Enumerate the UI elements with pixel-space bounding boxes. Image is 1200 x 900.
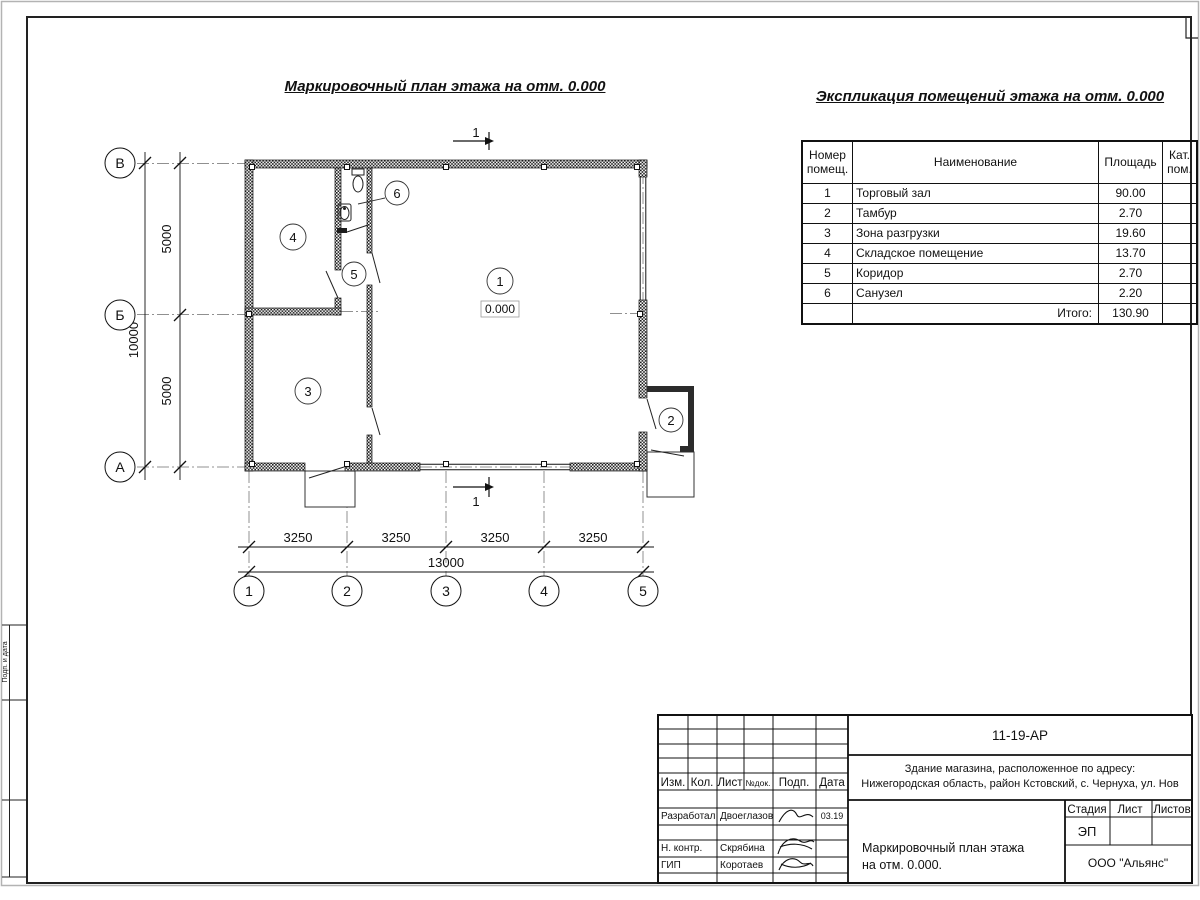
cell-name: Коридор [853, 264, 1099, 284]
address-line2: Нижегородская область, район Кстовский, … [861, 778, 1179, 790]
dim-3250-4: 3250 [579, 530, 608, 545]
cell-num [802, 304, 853, 325]
door-corridor-hall [372, 253, 380, 283]
explication-title: Экспликация помещений этажа на отм. 0.00… [793, 88, 1187, 105]
cell-cat [1163, 244, 1198, 264]
razrab-name: Двоеглазов [720, 811, 773, 822]
stage-label: Стадия [1067, 804, 1106, 816]
cell-cat [1163, 304, 1198, 325]
col-data: Дата [819, 777, 845, 789]
cell-cat [1163, 204, 1198, 224]
cell-num: 6 [802, 284, 853, 304]
wall-bottom-seg2 [345, 463, 420, 471]
table-row: 2 Тамбур 2.70 [802, 204, 1197, 224]
dimension-ticks [139, 157, 649, 578]
tambour-porch [647, 452, 694, 497]
header-name: Наименование [853, 141, 1099, 184]
total-label: Итого: [853, 304, 1099, 325]
door-room4 [326, 271, 338, 298]
wall-pier-wc [337, 228, 347, 233]
col-kol: Кол. [691, 777, 714, 789]
plan-title: Маркировочный план этажа на отм. 0.000 [225, 78, 665, 95]
header-category: Кат. пом. [1163, 141, 1198, 184]
list-label: Лист [1118, 804, 1144, 816]
door-room3-hall [372, 408, 380, 435]
total-value: 130.90 [1099, 304, 1163, 325]
title-block: Изм. Кол. Лист №док. Подп. Дата Разработ… [658, 715, 1192, 883]
axis-letter-b: Б [115, 307, 124, 323]
listov-label: Листов [1153, 804, 1190, 816]
explication-table: Номер помещ. Наименование Площадь Кат. п… [801, 140, 1198, 325]
cell-name: Зона разгрузки [853, 224, 1099, 244]
door-leaves [309, 225, 684, 478]
table-row: 3 Зона разгрузки 19.60 [802, 224, 1197, 244]
company-name: ООО "Альянс" [1088, 856, 1168, 870]
porches [305, 452, 694, 507]
toilet-icon [352, 169, 364, 192]
room-label-5: 5 [350, 267, 357, 282]
section-label-bottom: 1 [472, 494, 479, 509]
cell-name: Складское помещение [853, 244, 1099, 264]
col-list: Лист [718, 777, 744, 789]
stage-value: ЭП [1078, 824, 1097, 839]
cell-num: 4 [802, 244, 853, 264]
door-wc [347, 225, 368, 232]
side-stamp-label: Подп. и дата [2, 641, 9, 682]
cell-area: 19.60 [1099, 224, 1163, 244]
dim-3250-3: 3250 [481, 530, 510, 545]
axis-number-2: 2 [343, 583, 351, 599]
col-podp: Подп. [779, 777, 810, 789]
drawing-name-line2: на отм. 0.000. [862, 858, 942, 872]
dim-13000: 13000 [428, 555, 464, 570]
col-izm: Изм. [661, 777, 686, 789]
room-label-2: 2 [667, 413, 674, 428]
header-area: Площадь [1099, 141, 1163, 184]
wall-right-seg1 [639, 160, 647, 177]
gip-name: Коротаев [720, 860, 763, 871]
axis-letter-a: А [115, 459, 125, 475]
cell-cat [1163, 284, 1198, 304]
cell-area: 2.70 [1099, 264, 1163, 284]
dim-3250-2: 3250 [382, 530, 411, 545]
axis-marker-squares [247, 165, 643, 467]
nkontr-label: Н. контр. [661, 843, 702, 854]
room-label-4: 4 [289, 230, 296, 245]
axis-number-1: 1 [245, 583, 253, 599]
axis-letter-v: В [115, 155, 124, 171]
wall-right-seg3 [639, 432, 647, 471]
room-label-3: 3 [304, 384, 311, 399]
explication-header-row: Номер помещ. Наименование Площадь Кат. п… [802, 141, 1197, 184]
axis-number-4: 4 [540, 583, 548, 599]
axis-number-5: 5 [639, 583, 647, 599]
cell-cat [1163, 224, 1198, 244]
axis-number-3: 3 [442, 583, 450, 599]
doc-number: 11-19-АР [992, 728, 1048, 743]
cell-area: 2.70 [1099, 204, 1163, 224]
axis-grid-lines [137, 164, 643, 577]
table-row: 1 Торговый зал 90.00 [802, 184, 1197, 204]
wc-fixtures [338, 169, 364, 221]
floor-plan-drawing: Подп. и дата [0, 0, 1200, 900]
walls [245, 160, 647, 471]
cell-num: 3 [802, 224, 853, 244]
cell-area: 2.20 [1099, 284, 1163, 304]
razrab-label: Разработал [661, 810, 716, 822]
razrab-date: 03.19 [821, 811, 844, 821]
dimensions: 5000 5000 10000 3250 3250 3250 3250 1300… [126, 152, 654, 578]
table-row: 4 Складское помещение 13.70 [802, 244, 1197, 264]
door-hall-tambour [647, 399, 656, 429]
cell-name: Торговый зал [853, 184, 1099, 204]
cell-area: 90.00 [1099, 184, 1163, 204]
address-line1: Здание магазина, расположенное по адресу… [905, 763, 1136, 775]
section-label-top: 1 [472, 125, 479, 140]
wall-corridor-east-stub [367, 435, 372, 463]
dim-5000-top: 5000 [159, 225, 174, 254]
room-label-6: 6 [393, 186, 400, 201]
cell-cat [1163, 184, 1198, 204]
header-room-number: Номер помещ. [802, 141, 853, 184]
total-row: Итого: 130.90 [802, 304, 1197, 325]
cell-num: 5 [802, 264, 853, 284]
cell-cat [1163, 264, 1198, 284]
cell-name: Тамбур [853, 204, 1099, 224]
nkontr-name: Скрябина [720, 842, 765, 854]
cell-name: Санузел [853, 284, 1099, 304]
drawing-name-line1: Маркировочный план этажа [862, 841, 1024, 855]
room-label-1: 1 [496, 274, 503, 289]
elevation-label: 0.000 [485, 302, 515, 316]
cell-area: 13.70 [1099, 244, 1163, 264]
cell-num: 1 [802, 184, 853, 204]
drawing-sheet: Подп. и дата [0, 0, 1200, 900]
wall-corridor-east-seg1 [367, 168, 372, 253]
gip-label: ГИП [661, 860, 681, 871]
wall-corridor-east-seg2 [367, 285, 372, 407]
col-ndoc: №док. [746, 778, 771, 788]
dim-3250-1: 3250 [284, 530, 313, 545]
wall-axis-b [245, 308, 341, 315]
cell-num: 2 [802, 204, 853, 224]
table-row: 6 Санузел 2.20 [802, 284, 1197, 304]
windows [420, 177, 646, 470]
dim-5000-bottom: 5000 [159, 377, 174, 406]
table-row: 5 Коридор 2.70 [802, 264, 1197, 284]
